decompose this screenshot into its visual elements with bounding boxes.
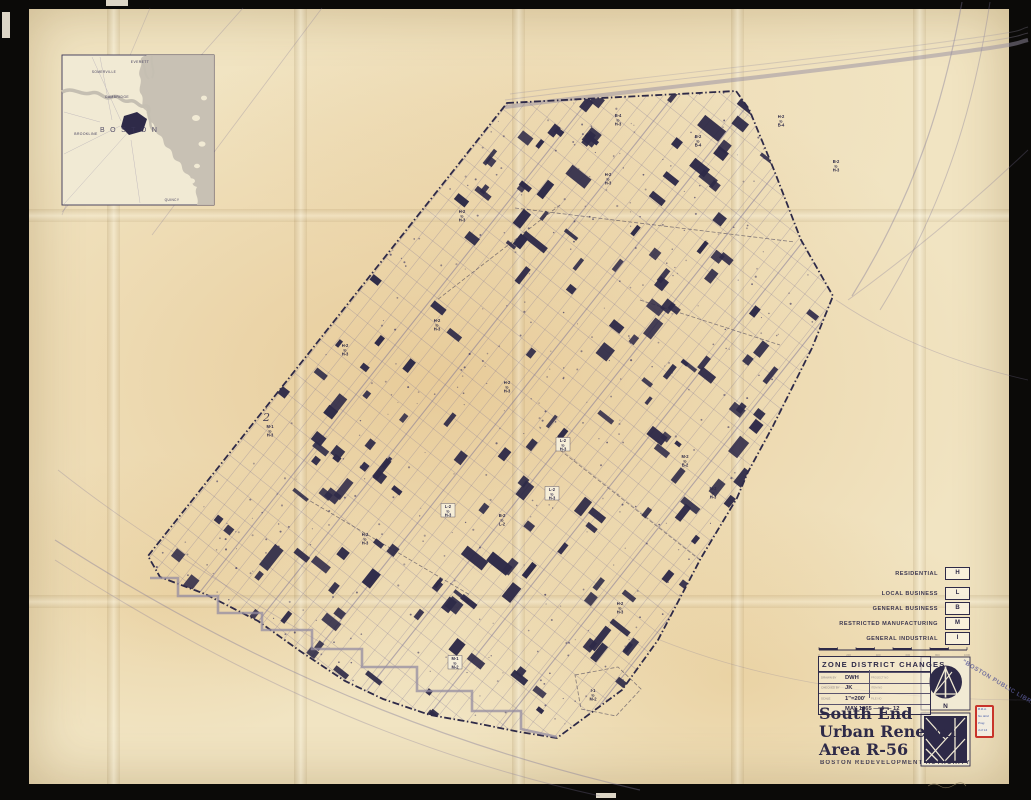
svg-text:H-3: H-3 bbox=[267, 433, 274, 438]
svg-text:H-3: H-3 bbox=[459, 218, 466, 223]
svg-text:M-1: M-1 bbox=[266, 424, 274, 429]
svg-text:H-2: H-2 bbox=[504, 380, 511, 385]
scanned-map-photo: { "colors": { "paper": "#f1e4c2", "ink":… bbox=[0, 0, 1031, 800]
title-line-1: South End bbox=[819, 705, 956, 723]
zone-change-label: H-2toH-3 bbox=[617, 601, 624, 615]
svg-text:L-2: L-2 bbox=[445, 504, 452, 509]
legend-row: RESIDENTIAL H bbox=[828, 567, 970, 580]
row-value: 1"=200' bbox=[845, 696, 865, 702]
svg-text:B-2: B-2 bbox=[499, 513, 506, 518]
row-label: CHECKED BY bbox=[821, 687, 840, 690]
svg-text:H-2: H-2 bbox=[605, 172, 612, 177]
pencil-note bbox=[928, 783, 966, 788]
svg-text:H-3: H-3 bbox=[549, 496, 556, 501]
zone-change-label: L-2toH-3 bbox=[545, 487, 559, 501]
svg-text:H-2: H-2 bbox=[459, 209, 466, 214]
svg-text:H-3: H-3 bbox=[445, 513, 452, 518]
legend-label: GENERAL BUSINESS bbox=[873, 606, 938, 612]
handwritten-number: 2 bbox=[262, 411, 270, 424]
row-value: JK bbox=[845, 685, 852, 691]
svg-text:B-4: B-4 bbox=[615, 113, 622, 118]
svg-text:H-2: H-2 bbox=[342, 343, 349, 348]
svg-text:M-2: M-2 bbox=[589, 697, 597, 702]
svg-text:M-2: M-2 bbox=[709, 486, 717, 491]
project-boundary bbox=[148, 91, 833, 738]
legend-row: RESTRICTED MANUFACTURING M bbox=[828, 617, 970, 630]
inset-place-label: BROOKLINE bbox=[74, 132, 98, 136]
row-right-label: FILE NO bbox=[871, 697, 882, 700]
svg-text:H-3: H-3 bbox=[342, 352, 349, 357]
svg-text:H-2: H-2 bbox=[778, 114, 785, 119]
agency-name: BOSTON REDEVELOPMENT AUTHORITY bbox=[820, 760, 971, 766]
zone-change-label: B-2toB-4 bbox=[695, 134, 702, 148]
legend-code-box: H bbox=[945, 567, 970, 580]
svg-text:H-3: H-3 bbox=[434, 327, 441, 332]
zone-change-label: H-2toH-3 bbox=[459, 209, 466, 223]
svg-text:M-2: M-2 bbox=[451, 665, 459, 670]
svg-text:800: 800 bbox=[935, 653, 940, 657]
zone-change-label: H-2toH-3 bbox=[362, 532, 369, 546]
table-row: DRAWN BY DWH PROJECT NO bbox=[819, 672, 930, 683]
svg-text:L-2: L-2 bbox=[499, 522, 506, 527]
handwritten-annotations: 2 bbox=[262, 411, 270, 424]
legend-code-box: I bbox=[945, 632, 970, 645]
legend-label: GENERAL INDUSTRIAL bbox=[866, 636, 938, 642]
legend-row: GENERAL BUSINESS B bbox=[828, 602, 970, 615]
row-right-label: ITEM NO bbox=[871, 687, 882, 690]
inset-place-label: QUINCY bbox=[165, 198, 180, 202]
svg-text:B-4: B-4 bbox=[778, 123, 785, 128]
table-row: SCALE 1"=200' FILE NO bbox=[819, 693, 930, 704]
sticker-line: Prog. bbox=[978, 722, 991, 725]
inset-place-label: EVERETT bbox=[131, 60, 149, 64]
svg-text:H-3: H-3 bbox=[615, 122, 622, 127]
legend-label: RESTRICTED MANUFACTURING bbox=[839, 621, 938, 627]
zone-change-label: B-2toL-2 bbox=[499, 513, 506, 527]
legend-code-box: L bbox=[945, 587, 970, 600]
svg-text:H-2: H-2 bbox=[434, 318, 441, 323]
zone-change-label: M-1toM-2 bbox=[448, 656, 462, 670]
zone-change-label: B-4toH-3 bbox=[615, 113, 622, 127]
grey-step-line bbox=[150, 578, 557, 737]
inset-place-label: CAMBRIDGE bbox=[105, 95, 129, 99]
svg-text:M-1: M-1 bbox=[451, 656, 459, 661]
svg-text:L-2: L-2 bbox=[560, 438, 567, 443]
sticker-line: So. End bbox=[978, 715, 991, 718]
zone-change-label: L-2toH-3 bbox=[441, 504, 455, 518]
row-label: SCALE bbox=[821, 697, 840, 700]
svg-text:H-2: H-2 bbox=[362, 532, 369, 537]
inset-city-label: BOSTON bbox=[100, 127, 162, 134]
svg-text:H-3: H-3 bbox=[833, 168, 840, 173]
legend-row: LOCAL BUSINESS L bbox=[828, 587, 970, 600]
row-right-label: PROJECT NO bbox=[871, 676, 888, 679]
zone-change-label: M-1toH-3 bbox=[266, 424, 274, 438]
svg-text:I-1: I-1 bbox=[591, 688, 597, 693]
svg-text:H-3: H-3 bbox=[362, 541, 369, 546]
row-label: DRAWN BY bbox=[821, 676, 840, 679]
legend-row: GENERAL INDUSTRIAL I bbox=[828, 632, 970, 645]
legend-code-box: B bbox=[945, 602, 970, 615]
table-divider bbox=[869, 670, 870, 698]
legend-code-box: M bbox=[945, 617, 970, 630]
inset-place-label: SOMERVILLE bbox=[92, 70, 116, 74]
zone-change-label: H-2toB-4 bbox=[778, 114, 785, 128]
svg-text:M-2: M-2 bbox=[681, 454, 689, 459]
svg-text:H-3: H-3 bbox=[617, 610, 624, 615]
zone-change-label: H-2toH-3 bbox=[434, 318, 441, 332]
row-value: DWH bbox=[845, 675, 859, 681]
svg-text:H-3: H-3 bbox=[605, 181, 612, 186]
svg-text:B-2: B-2 bbox=[695, 134, 702, 139]
svg-text:L-2: L-2 bbox=[549, 487, 556, 492]
zone-change-label: H-2toH-3 bbox=[504, 380, 511, 394]
svg-text:H-2: H-2 bbox=[617, 601, 624, 606]
catalog-sticker: B.R.A. So. End Prog. 4 of 14 Arch'l bbox=[975, 705, 994, 738]
map-title: South End Urban Renewal Area R-56 bbox=[819, 705, 956, 759]
zone-change-label: H-2toH-3 bbox=[342, 343, 349, 357]
zone-change-label: I-1toM-2 bbox=[589, 688, 597, 702]
legend-label: RESIDENTIAL bbox=[895, 571, 938, 577]
sticker-line: 4 of 14 bbox=[978, 729, 991, 732]
svg-text:B-4: B-4 bbox=[695, 143, 702, 148]
table-title: ZONE DISTRICT CHANGES bbox=[819, 657, 930, 672]
table-row: CHECKED BY JK ITEM NO bbox=[819, 683, 930, 694]
zone-change-label: H-2toH-3 bbox=[605, 172, 612, 186]
svg-text:B-2: B-2 bbox=[682, 463, 689, 468]
sticker-line: B.R.A. bbox=[978, 708, 991, 711]
title-line-2: Urban Renewal bbox=[819, 723, 956, 741]
zone-change-label: M-2toB-2 bbox=[681, 454, 689, 468]
railroad-band bbox=[505, 27, 1028, 107]
svg-text:1000: 1000 bbox=[964, 653, 971, 657]
svg-text:H-3: H-3 bbox=[504, 389, 511, 394]
title-line-3: Area R-56 bbox=[819, 741, 956, 759]
zone-change-label: L-2toH-3 bbox=[556, 438, 570, 452]
legend-label: LOCAL BUSINESS bbox=[882, 591, 938, 597]
svg-text:B-2: B-2 bbox=[833, 159, 840, 164]
zone-change-label: B-2toH-3 bbox=[833, 159, 840, 173]
svg-text:H-3: H-3 bbox=[710, 495, 717, 500]
sticker-line: Arch'l bbox=[978, 736, 991, 738]
svg-text:H-3: H-3 bbox=[560, 447, 567, 452]
